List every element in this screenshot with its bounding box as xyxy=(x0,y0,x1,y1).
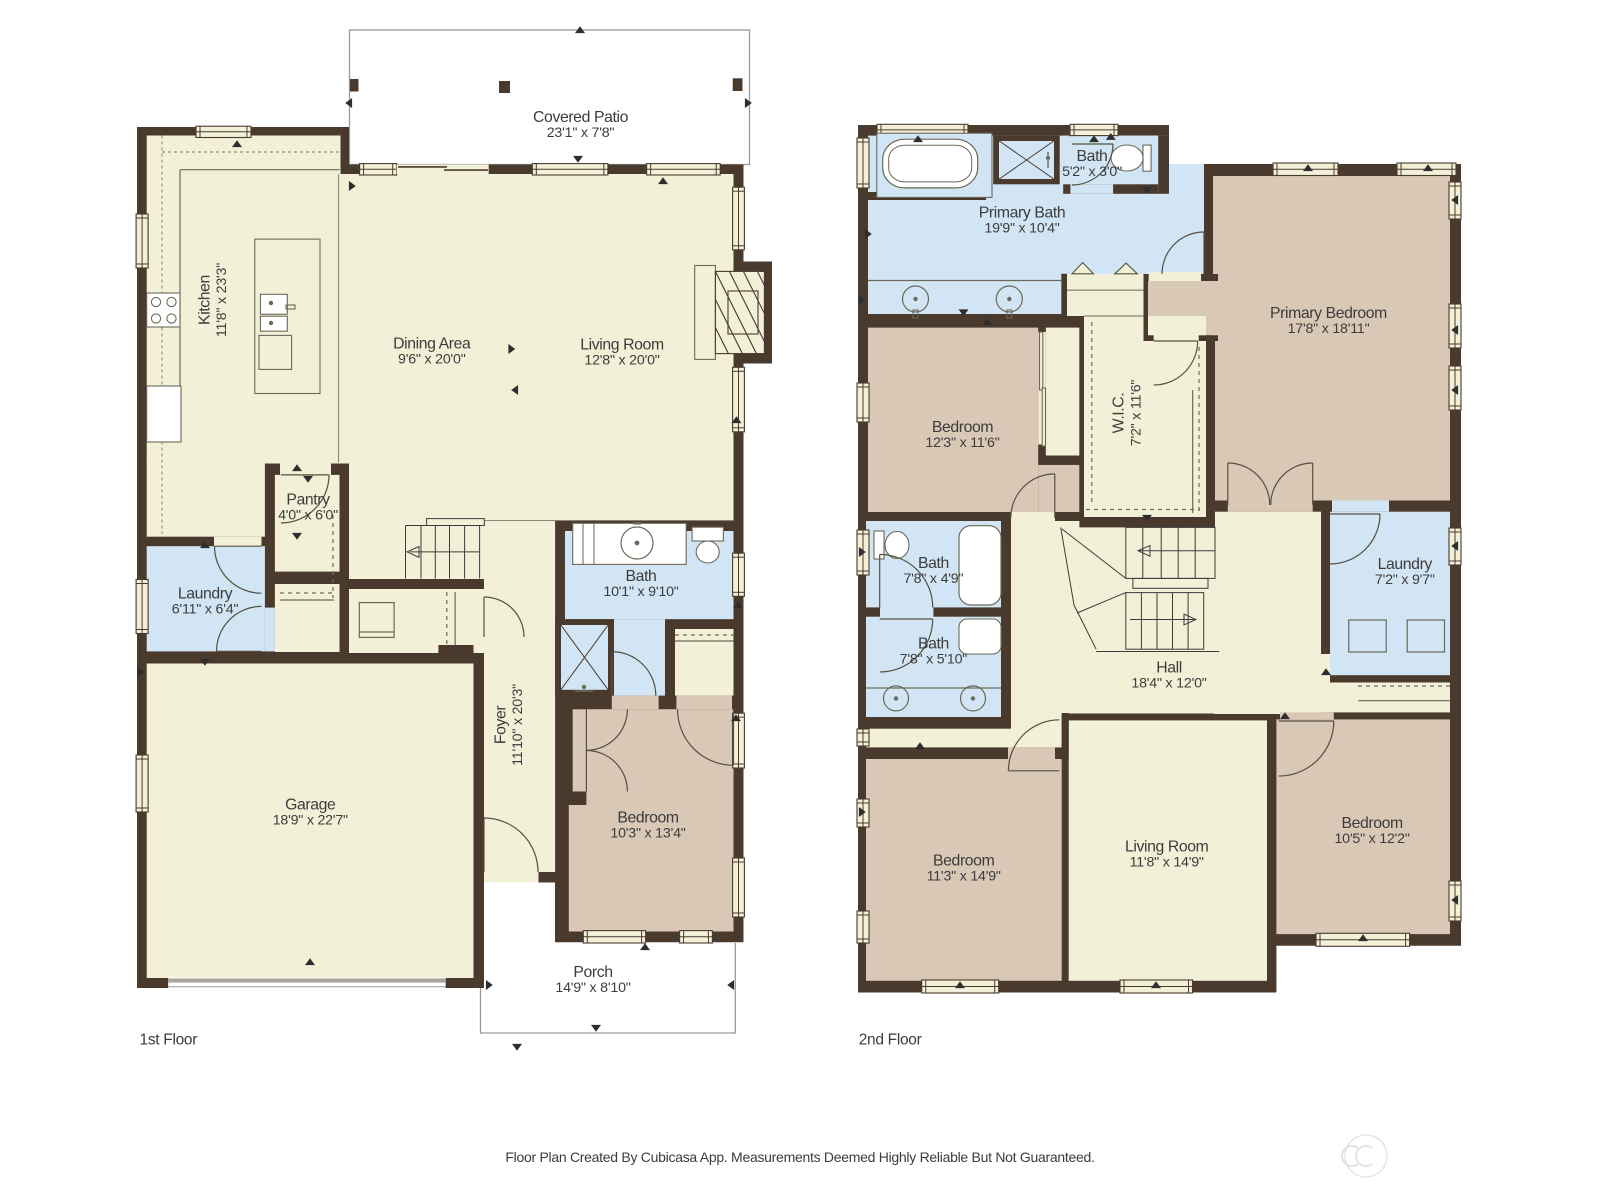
svg-text:23'1" x 7'8": 23'1" x 7'8" xyxy=(547,125,615,141)
svg-text:Bath: Bath xyxy=(626,568,657,585)
svg-text:Bath: Bath xyxy=(918,636,949,653)
svg-text:Bedroom: Bedroom xyxy=(933,853,995,870)
svg-text:14'9" x 8'10": 14'9" x 8'10" xyxy=(555,980,630,996)
svg-text:Kitchen: Kitchen xyxy=(196,275,213,325)
svg-text:11'10" x 20'3": 11'10" x 20'3" xyxy=(510,684,526,766)
svg-text:11'8" x 23'3": 11'8" x 23'3" xyxy=(214,263,230,337)
svg-text:Bath: Bath xyxy=(918,555,949,572)
svg-text:Porch: Porch xyxy=(573,964,612,981)
svg-text:Garage: Garage xyxy=(285,797,336,814)
svg-text:7'2" x 11'6": 7'2" x 11'6" xyxy=(1128,380,1144,447)
svg-text:7'2" x 9'7": 7'2" x 9'7" xyxy=(1375,572,1435,588)
svg-text:Covered Patio: Covered Patio xyxy=(533,109,629,126)
svg-text:5'2" x 3'0": 5'2" x 3'0" xyxy=(1062,164,1122,180)
svg-text:7'8" x 4'9": 7'8" x 4'9" xyxy=(903,571,963,587)
svg-text:Bedroom: Bedroom xyxy=(1341,815,1403,832)
svg-text:Foyer: Foyer xyxy=(492,706,509,745)
svg-text:Laundry: Laundry xyxy=(1378,556,1433,573)
svg-text:17'8" x 18'11": 17'8" x 18'11" xyxy=(1288,321,1370,337)
svg-text:18'4" x 12'0": 18'4" x 12'0" xyxy=(1131,676,1206,692)
svg-text:7'8" x 5'10": 7'8" x 5'10" xyxy=(900,652,968,668)
svg-text:Primary Bedroom: Primary Bedroom xyxy=(1270,305,1387,322)
svg-text:2nd Floor: 2nd Floor xyxy=(859,1032,922,1049)
svg-text:Floor Plan Created By Cubicasa: Floor Plan Created By Cubicasa App. Meas… xyxy=(505,1149,1094,1165)
svg-text:1st Floor: 1st Floor xyxy=(140,1032,198,1049)
svg-text:10'1" x 9'10": 10'1" x 9'10" xyxy=(603,584,678,600)
svg-text:Bedroom: Bedroom xyxy=(932,419,994,436)
svg-text:12'8" x 20'0": 12'8" x 20'0" xyxy=(584,353,659,369)
svg-text:Dining Area: Dining Area xyxy=(393,336,471,353)
svg-text:6'11" x 6'4": 6'11" x 6'4" xyxy=(172,602,239,618)
svg-text:12'3" x 11'6": 12'3" x 11'6" xyxy=(925,435,999,451)
svg-text:4'0" x 6'0": 4'0" x 6'0" xyxy=(278,508,338,524)
svg-text:10'5" x 12'2": 10'5" x 12'2" xyxy=(1334,831,1409,847)
svg-text:Living Room: Living Room xyxy=(580,337,664,354)
svg-text:11'8" x 14'9": 11'8" x 14'9" xyxy=(1130,855,1204,871)
svg-text:Living Room: Living Room xyxy=(1125,839,1209,856)
svg-text:Hall: Hall xyxy=(1156,660,1182,677)
svg-text:18'9" x 22'7": 18'9" x 22'7" xyxy=(273,813,348,829)
svg-text:10'3" x 13'4": 10'3" x 13'4" xyxy=(610,826,685,842)
svg-text:W.I.C.: W.I.C. xyxy=(1111,393,1128,434)
svg-text:9'6" x 20'0": 9'6" x 20'0" xyxy=(398,352,466,368)
svg-text:11'3" x 14'9": 11'3" x 14'9" xyxy=(927,869,1001,885)
svg-text:19'9" x 10'4": 19'9" x 10'4" xyxy=(984,221,1059,237)
svg-text:Laundry: Laundry xyxy=(178,586,233,603)
svg-text:Pantry: Pantry xyxy=(286,492,330,509)
svg-text:Bedroom: Bedroom xyxy=(617,810,679,827)
svg-text:Primary Bath: Primary Bath xyxy=(979,205,1066,222)
svg-text:Bath: Bath xyxy=(1077,148,1108,165)
